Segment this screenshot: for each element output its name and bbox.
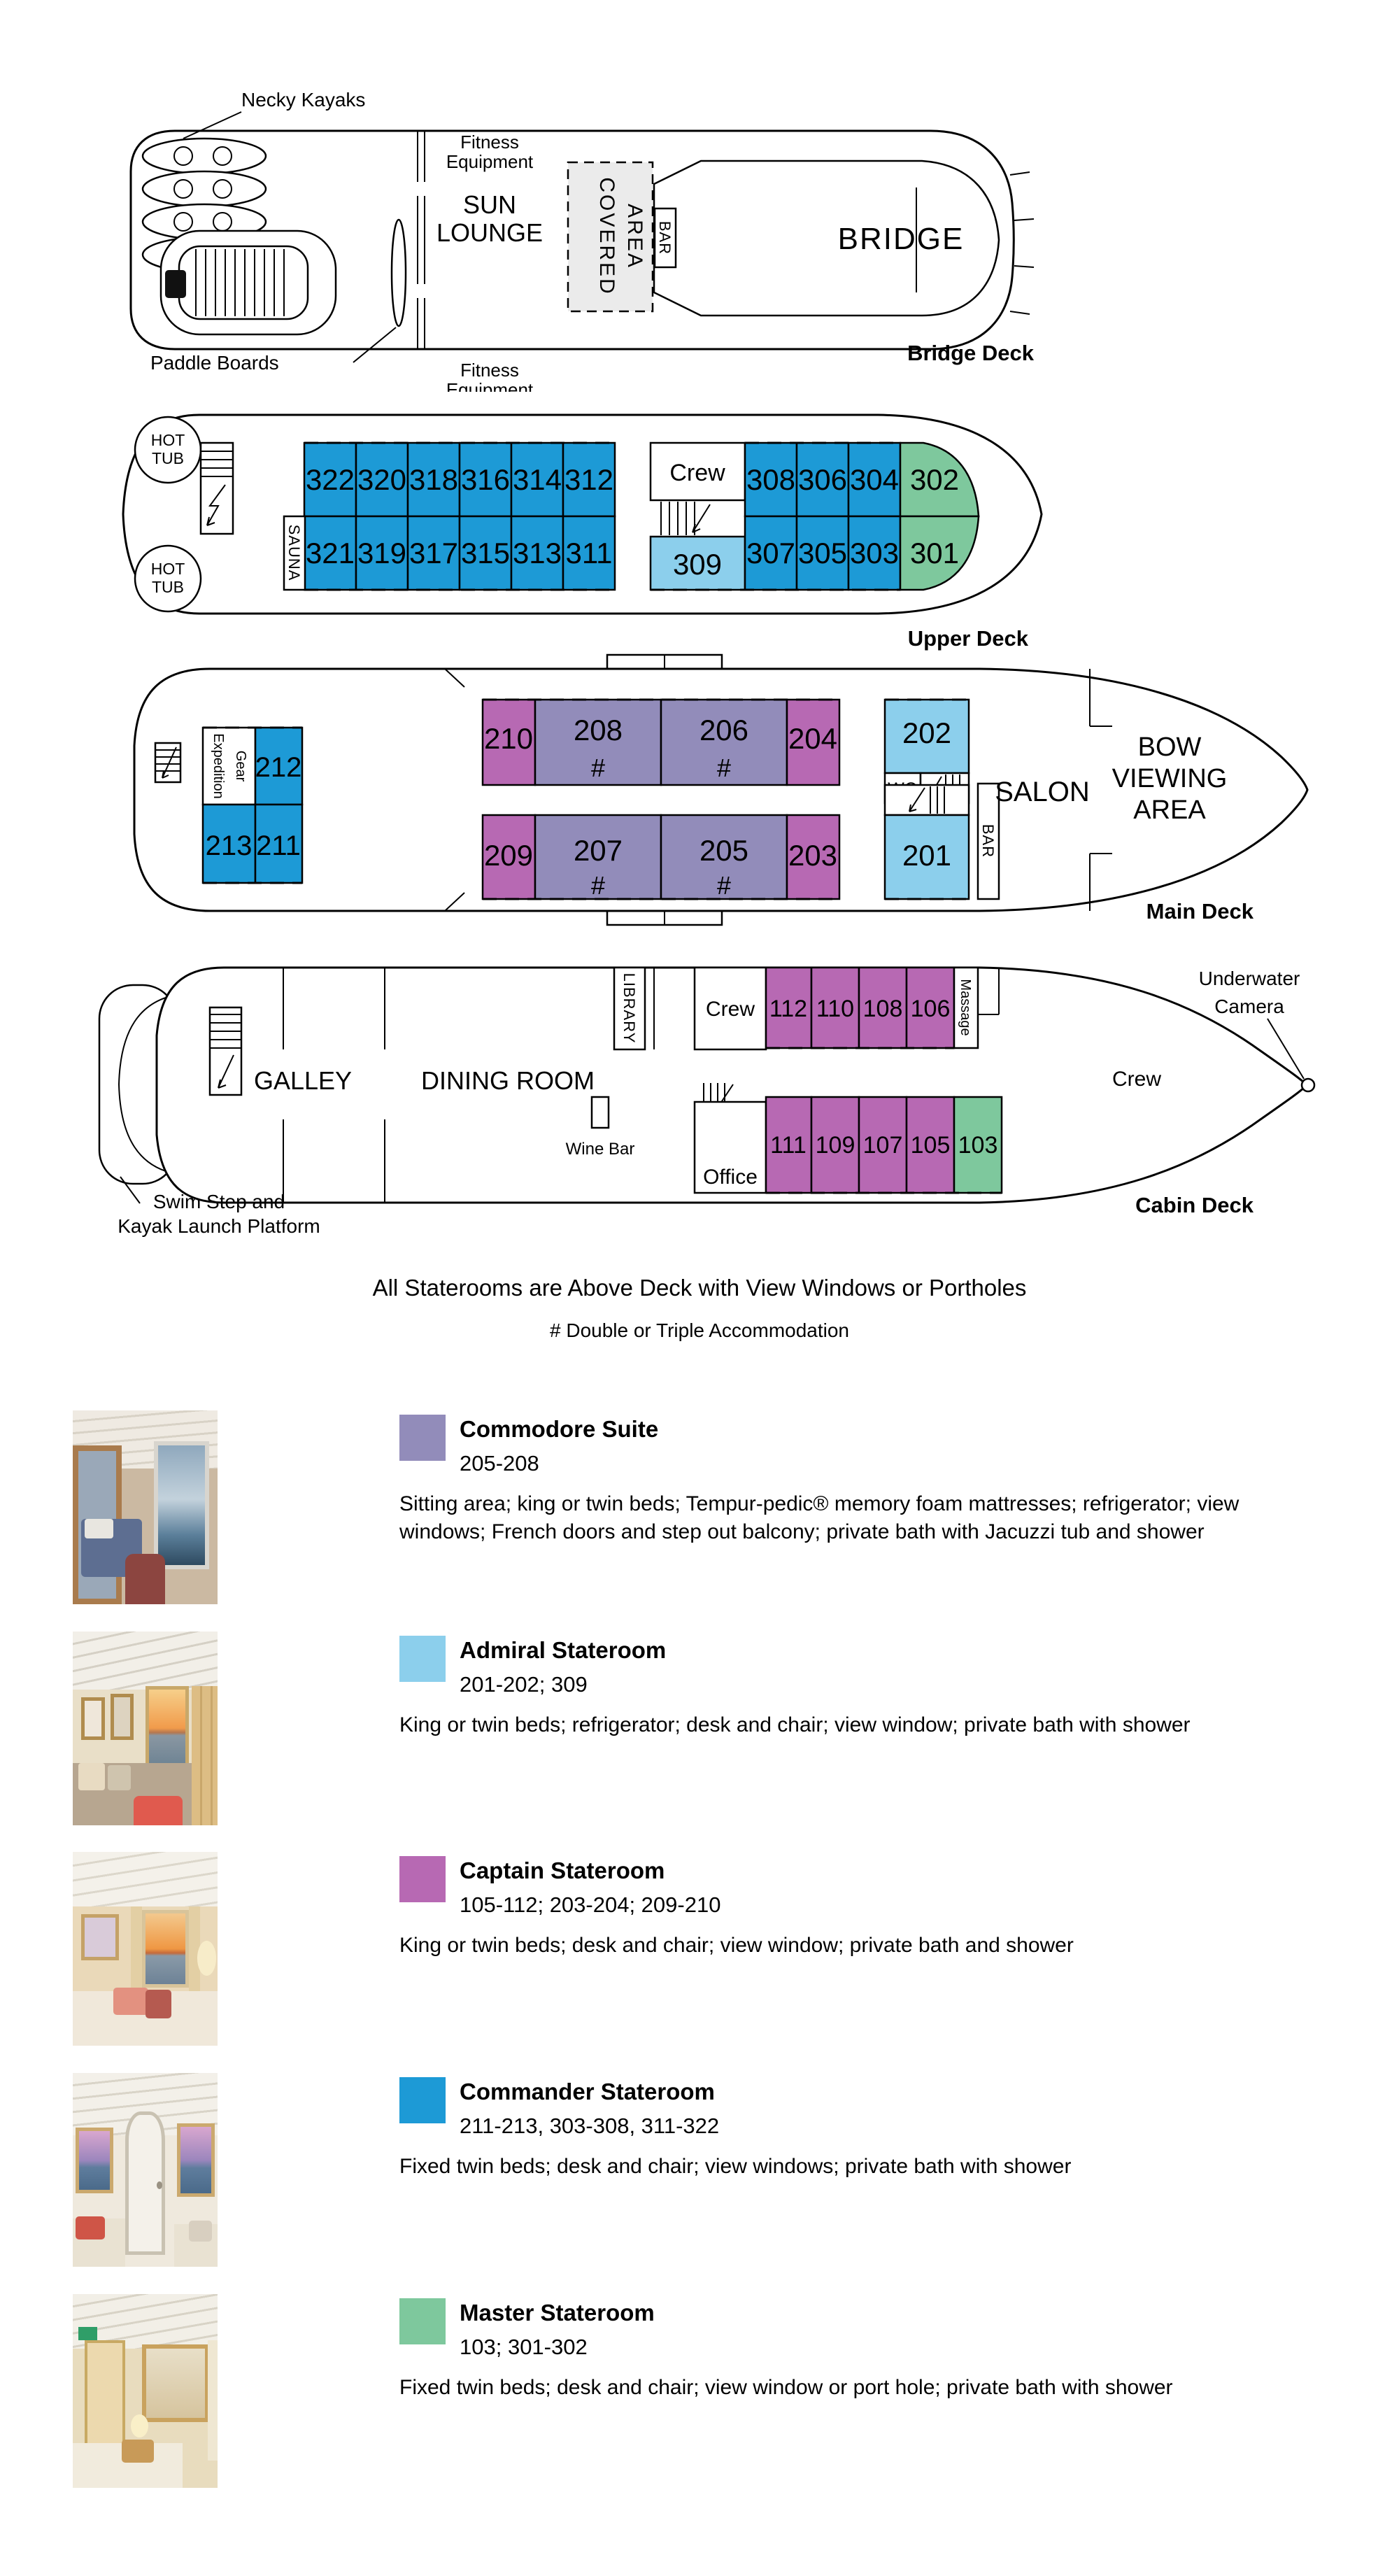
legend-entry-commodore: Commodore Suite 205-208 Sitting area; ki…	[0, 1410, 1399, 1613]
photo-commodore-suite	[73, 1410, 218, 1604]
swim-step-label-1: Swim Step and	[153, 1191, 285, 1212]
room-106-label: 106	[911, 996, 951, 1022]
photo-framed-art	[81, 1697, 104, 1740]
room-203-label: 203	[788, 839, 837, 872]
photo-captain-stateroom	[73, 1852, 218, 2046]
room-321-label: 321	[306, 537, 355, 569]
expedition-gear-label-2: Gear	[233, 751, 248, 782]
room-213-label: 213	[206, 830, 253, 861]
main-deck-name: Main Deck	[1146, 899, 1254, 923]
sun-lounge-label-1: SUN	[463, 190, 516, 219]
room-303-label: 303	[850, 537, 899, 569]
legend-title: Captain Stateroom	[460, 1857, 665, 1884]
room-206-hash: #	[717, 753, 731, 782]
covered-area-label-1: COVERED	[595, 177, 618, 295]
fitness-top-label-1: Fitness	[460, 132, 519, 153]
room-318-label: 318	[409, 463, 458, 496]
room-207-label: 207	[574, 834, 623, 867]
legend-rooms: 201-202; 309	[460, 1672, 588, 1697]
bar-label: BAR	[979, 824, 997, 858]
photo-window-sunset	[145, 1686, 189, 1767]
bridge-room-label: BRIDGE	[838, 222, 965, 256]
legend-rooms: 105-112; 203-204; 209-210	[460, 1892, 720, 1918]
bridge-deck-name: Bridge Deck	[907, 341, 1035, 365]
legend-title: Commodore Suite	[460, 1416, 658, 1443]
galley-label: GALLEY	[254, 1066, 352, 1095]
fitness-bottom-label-1: Fitness	[460, 360, 519, 381]
room-207-hash: #	[591, 871, 605, 900]
hot-tub-top-label-1: HOT	[151, 431, 185, 449]
legend-description: Fixed twin beds; desk and chair; view wi…	[399, 2153, 1260, 2181]
zodiac-boat-icon	[161, 231, 336, 334]
room-208-label: 208	[574, 714, 623, 746]
legend-entry-commander: Commander Stateroom 211-213, 303-308, 31…	[0, 2073, 1399, 2276]
room-302-label: 302	[910, 463, 959, 496]
stairs-icon	[885, 785, 969, 815]
legend-description: Fixed twin beds; desk and chair; view wi…	[399, 2374, 1260, 2402]
room-211-label: 211	[256, 830, 301, 861]
photo-pillow	[145, 1990, 171, 2019]
photo-pillow	[189, 2221, 212, 2242]
room-112-label: 112	[769, 996, 807, 1022]
photo-lamp-glow	[197, 1941, 216, 1976]
photo-ceiling	[73, 1632, 218, 1694]
photo-french-doors	[154, 1441, 209, 1569]
staterooms-note: All Staterooms are Above Deck with View …	[0, 1275, 1399, 1301]
room-308-label: 308	[746, 463, 795, 496]
underwater-camera-label-1: Underwater	[1199, 968, 1300, 989]
photo-chair	[125, 1554, 166, 1604]
room-301-label: 301	[910, 537, 959, 569]
room-313-label: 313	[513, 537, 562, 569]
room-314-label: 314	[513, 463, 562, 496]
room-316-label: 316	[461, 463, 510, 496]
legend-entry-master: Master Stateroom 103; 301-302 Fixed twin…	[0, 2294, 1399, 2497]
covered-area-label-2: AREA	[623, 204, 646, 269]
room-205-hash: #	[717, 871, 731, 900]
dining-room-label: DINING ROOM	[421, 1066, 595, 1095]
legend-rooms: 211-213, 303-308, 311-322	[460, 2114, 719, 2139]
paddle-boards-label: Paddle Boards	[150, 352, 279, 374]
bow-viewing-label-1: BOW	[1138, 733, 1202, 762]
photo-window-dusk	[76, 2128, 113, 2193]
stairs-icon	[201, 443, 233, 534]
room-322-label: 322	[306, 463, 355, 496]
photo-ceiling	[73, 1852, 218, 1910]
bridge-deck-plan: COVERED AREA BRIDGE BAR Fitness Equipmen…	[0, 70, 1399, 392]
legend-description: King or twin beds; desk and chair; view …	[399, 1932, 1260, 1960]
photo-framed-art	[81, 1914, 119, 1960]
photo-pillow	[113, 1988, 148, 2015]
bar-label: BAR	[656, 221, 674, 255]
legend-swatch-master	[399, 2298, 446, 2344]
room-319-label: 319	[357, 537, 406, 569]
photo-admiral-stateroom	[73, 1632, 218, 1825]
photo-pillow	[108, 1765, 131, 1790]
room-212-label: 212	[255, 752, 302, 783]
photo-red-throw	[134, 1796, 183, 1825]
legend-entry-admiral: Admiral Stateroom 201-202; 309 King or t…	[0, 1632, 1399, 1834]
photo-commander-stateroom	[73, 2073, 218, 2267]
room-209-label: 209	[484, 839, 533, 872]
room-110-label: 110	[816, 996, 854, 1022]
upper-deck-name: Upper Deck	[908, 626, 1029, 651]
photo-curtain	[131, 1906, 143, 1992]
fitness-bottom-label-2: Equipment	[446, 379, 534, 392]
legend-description: King or twin beds; refrigerator; desk an…	[399, 1711, 1260, 1739]
photo-master-stateroom	[73, 2294, 218, 2488]
room-305-label: 305	[798, 537, 847, 569]
photo-window-sunset	[142, 1910, 188, 1988]
sun-lounge-label-2: LOUNGE	[436, 218, 543, 247]
salon-label: SALON	[995, 777, 1090, 807]
room-103-label: 103	[958, 1132, 998, 1159]
office-label: Office	[703, 1166, 758, 1189]
photo-lamp-glow	[131, 2414, 148, 2437]
stairs-icon	[210, 1007, 241, 1095]
bow-viewing-label-3: AREA	[1133, 795, 1206, 825]
swim-step-label-2: Kayak Launch Platform	[118, 1215, 320, 1237]
legend-swatch-commodore	[399, 1415, 446, 1461]
room-315-label: 315	[461, 537, 510, 569]
cabin-deck-name: Cabin Deck	[1135, 1193, 1254, 1217]
legend-rooms: 103; 301-302	[460, 2335, 588, 2360]
hot-tub-top-label-2: TUB	[152, 449, 184, 467]
legend-swatch-commander	[399, 2077, 446, 2123]
room-208-hash: #	[591, 753, 605, 782]
legend-title: Admiral Stateroom	[460, 1637, 666, 1664]
bow-viewing-label-2: VIEWING	[1112, 764, 1228, 793]
photo-framed-art	[142, 2344, 208, 2422]
photo-framed-art	[111, 1694, 134, 1740]
crew-label: Crew	[706, 998, 755, 1021]
photo-pillow	[122, 2440, 154, 2463]
photo-cabinet	[192, 1686, 218, 1825]
upper-deck-plan: HOT TUB HOT TUB 322 320 318 316 314 312 …	[0, 402, 1399, 654]
photo-pillow	[85, 1519, 113, 1538]
underwater-camera-icon	[1302, 1079, 1314, 1091]
room-311-label: 311	[566, 537, 613, 569]
paddle-boards-icon	[392, 220, 406, 326]
room-107-label: 107	[863, 1132, 903, 1159]
photo-pillow	[78, 1763, 104, 1790]
photo-curtain	[208, 2340, 218, 2461]
hash-note: # Double or Triple Accommodation	[0, 1319, 1399, 1342]
legend-entry-captain: Captain Stateroom 105-112; 203-204; 209-…	[0, 1852, 1399, 2055]
expedition-gear-label-1: Expedition	[211, 733, 226, 798]
room-306-label: 306	[798, 463, 847, 496]
fitness-top-label-2: Equipment	[446, 151, 534, 172]
deck-plan-page: COVERED AREA BRIDGE BAR Fitness Equipmen…	[0, 0, 1399, 2576]
cabin-deck-plan: GALLEY DINING ROOM Wine Bar LIBRARY Crew…	[0, 944, 1399, 1245]
hot-tub-bottom-label-2: TUB	[152, 578, 184, 596]
room-206-label: 206	[699, 714, 748, 746]
room-204-label: 204	[788, 722, 837, 755]
crew-label: Crew	[669, 460, 725, 486]
stairs-icon	[155, 743, 180, 782]
wine-bar-label: Wine Bar	[566, 1140, 635, 1159]
necky-kayaks-label: Necky Kayaks	[241, 89, 365, 111]
legend-description: Sitting area; king or twin beds; Tempur-…	[399, 1490, 1260, 1546]
legend-swatch-captain	[399, 1856, 446, 1902]
main-deck-plan: Expedition Gear 212 213 211 210 208 # 20…	[0, 651, 1399, 930]
legend-rooms: 205-208	[460, 1451, 539, 1476]
room-312-label: 312	[564, 463, 613, 496]
room-304-label: 304	[850, 463, 899, 496]
hot-tub-bottom-label-1: HOT	[151, 560, 185, 578]
room-109-label: 109	[816, 1132, 855, 1159]
room-202-label: 202	[902, 716, 951, 749]
room-111-label: 111	[770, 1132, 807, 1159]
room-201-label: 201	[902, 839, 951, 872]
photo-exit-sign	[78, 2327, 97, 2340]
sauna-label: SAUNA	[285, 525, 303, 581]
room-307-label: 307	[746, 537, 795, 569]
photo-pillow	[76, 2216, 104, 2239]
room-108-label: 108	[863, 996, 903, 1022]
room-105-label: 105	[911, 1132, 951, 1159]
room-320-label: 320	[357, 463, 406, 496]
room-210-label: 210	[484, 722, 533, 755]
wine-bar-counter	[592, 1097, 609, 1128]
photo-window-dusk	[177, 2123, 215, 2197]
room-309-label: 309	[673, 548, 722, 581]
underwater-camera-label-2: Camera	[1214, 996, 1284, 1017]
legend-title: Master Stateroom	[460, 2300, 655, 2326]
bow-crew-label: Crew	[1112, 1068, 1161, 1091]
room-317-label: 317	[409, 537, 458, 569]
legend-swatch-admiral	[399, 1636, 446, 1682]
massage-label: Massage	[958, 979, 973, 1035]
room-205-label: 205	[699, 834, 748, 867]
legend-title: Commander Stateroom	[460, 2079, 715, 2105]
library-label: LIBRARY	[620, 973, 638, 1044]
